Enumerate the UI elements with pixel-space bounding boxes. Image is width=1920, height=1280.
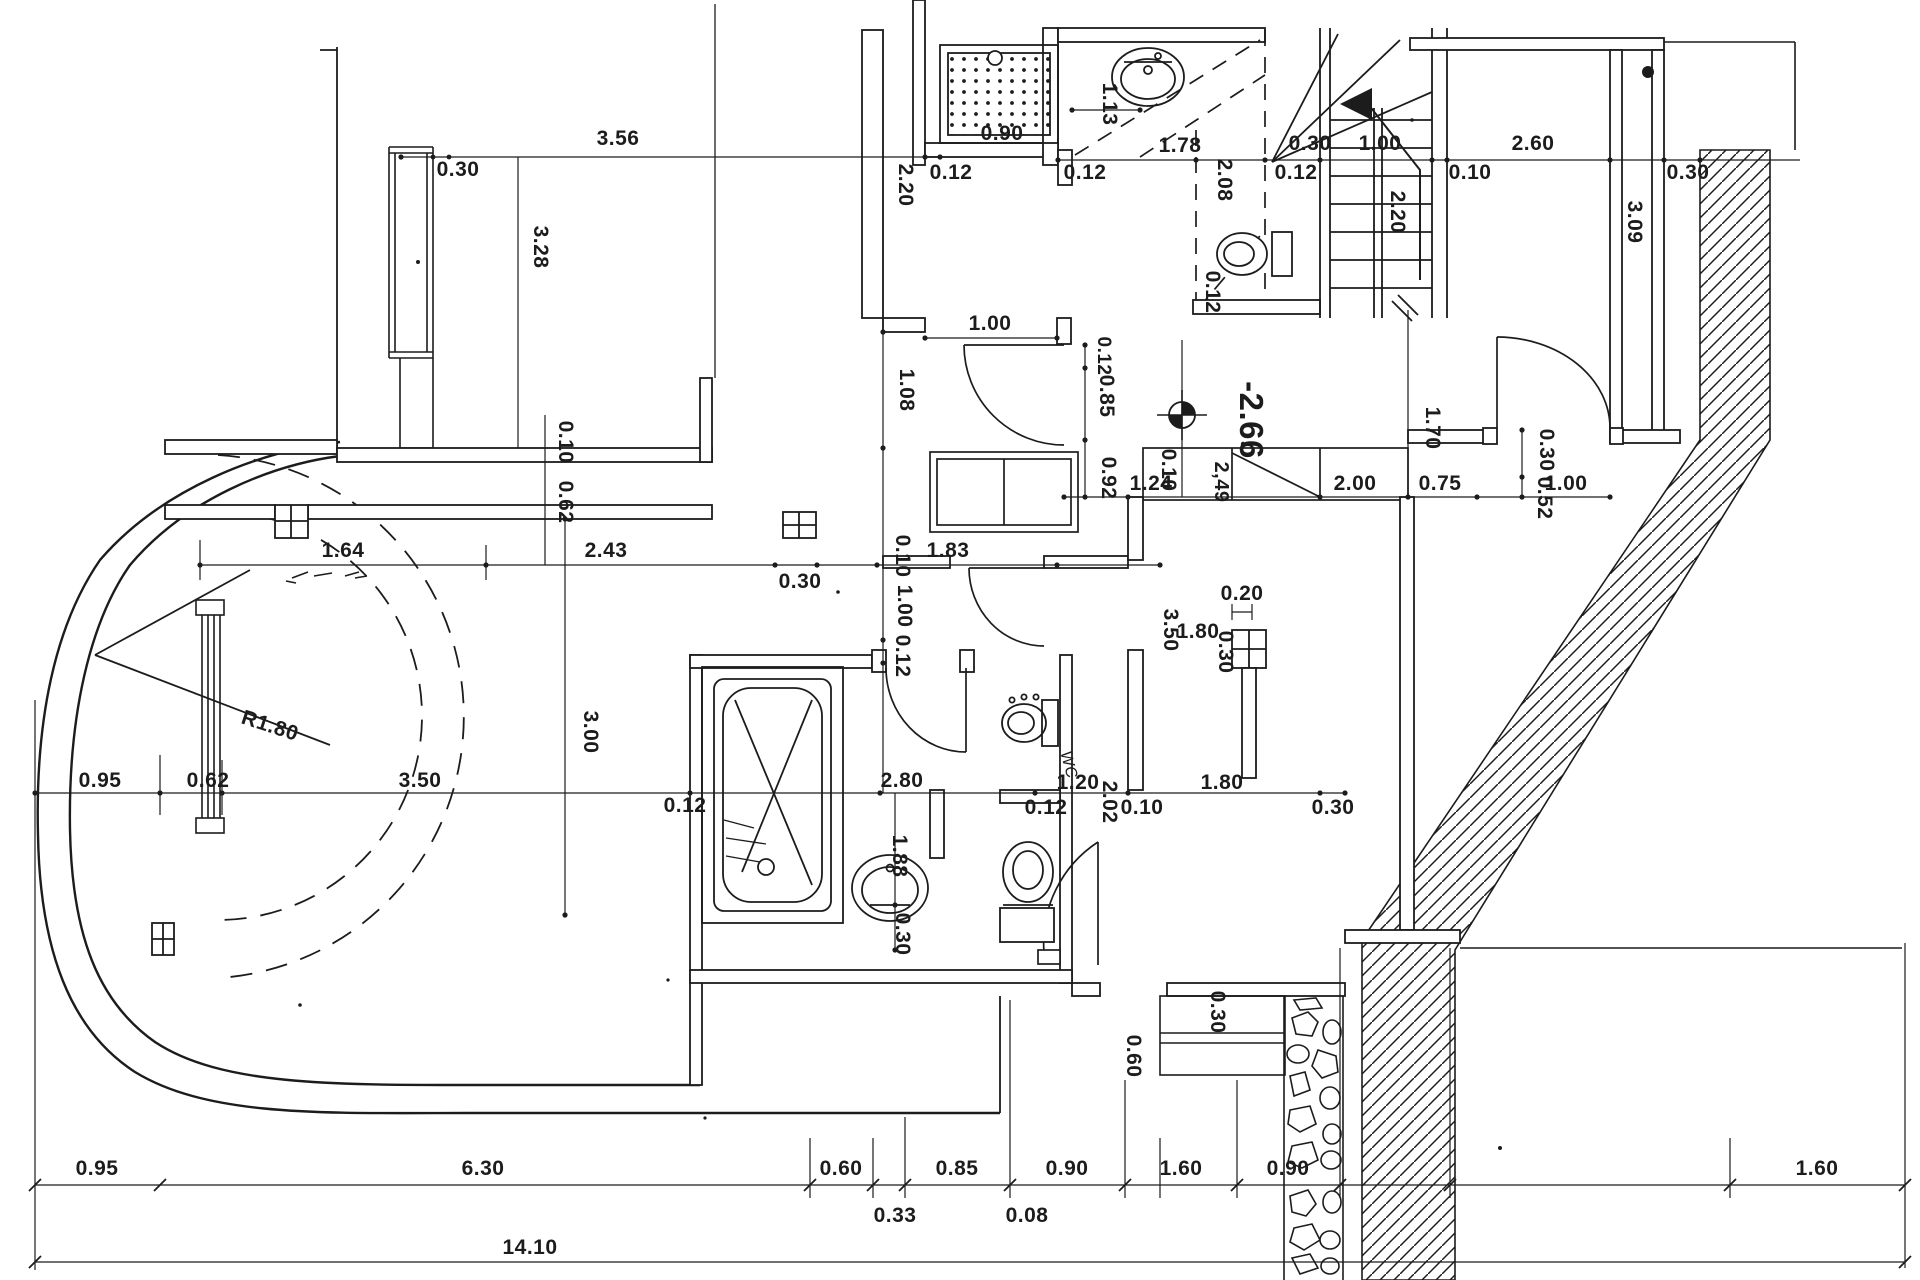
sketch-marks (286, 572, 367, 583)
dim-label: 0.30 (891, 913, 914, 956)
dim-label: 0.12 (1201, 271, 1224, 314)
dim-label: 0.90 (981, 122, 1024, 145)
dim-label: 0.85 (936, 1157, 979, 1180)
door-arc-kitchen-hall (969, 568, 1044, 646)
dim-label: 0.30 (1214, 631, 1237, 674)
dim-label: 0.12 (664, 794, 707, 817)
dim-label: 0.95 (79, 769, 122, 792)
sofa (930, 452, 1078, 532)
dim-label: 1.88 (888, 835, 911, 878)
dim-label: 1.83 (927, 539, 970, 562)
dim-label: 3.28 (529, 226, 552, 269)
dim-label: 0.95 (76, 1157, 119, 1180)
stairs-direction-arrow-icon (1340, 88, 1420, 280)
floor-plan-page: 3.56 0.30 3.28 2.20 0.12 0.90 1.13 0.12 … (0, 0, 1920, 1280)
dim-label: 0.10 (1449, 161, 1492, 184)
top-left-facade (320, 47, 337, 455)
exterior-steps (1160, 948, 1902, 1075)
dim-label: 1.60 (1160, 1157, 1203, 1180)
dim-label: 1.00 (893, 585, 916, 628)
dim-label: 2.20 (894, 164, 917, 207)
column-1 (275, 505, 308, 538)
dim-label: 0.12 (1275, 161, 1318, 184)
bidet-icon (1002, 694, 1058, 746)
dim-label: 2.02 (1098, 781, 1121, 824)
level-elevation-label: -2.66 (1233, 381, 1270, 459)
door-arc-upper-right (1497, 337, 1610, 428)
dim-label: 0.08 (1006, 1204, 1049, 1227)
window-left (389, 147, 433, 448)
dim-label: 0.90 (1267, 1157, 1310, 1180)
column-3 (152, 923, 174, 955)
dim-label: 1.80 (1177, 620, 1220, 643)
dim-label: 0.10 (1121, 796, 1164, 819)
dim-label: 3.50 (399, 769, 442, 792)
dim-label: 0.30 (1312, 796, 1355, 819)
dim-label: 0.60 (1122, 1035, 1145, 1078)
bottom-row-ticks (29, 1179, 1911, 1268)
dim-label: 0.30 (1206, 991, 1229, 1034)
dim-label: 0.60 (820, 1157, 863, 1180)
floor-plan-svg: 3.56 0.30 3.28 2.20 0.12 0.90 1.13 0.12 … (0, 0, 1920, 1280)
walls-top-left-room (165, 30, 1071, 462)
dim-label: 2.43 (585, 539, 628, 562)
door-arc-hall (964, 345, 1064, 445)
dim-label: 0.30 (437, 158, 480, 181)
dim-label: 1.64 (322, 539, 365, 562)
stone-rubble-wall (1284, 996, 1343, 1280)
door-hinge-dot (1642, 66, 1654, 78)
column-4 (783, 512, 816, 538)
door-arc-bathroom (886, 668, 966, 752)
dim-label: 1.00 (969, 312, 1012, 335)
dim-label: 0.30 (1667, 161, 1710, 184)
level-secondary-label: 2,49 (1210, 462, 1232, 503)
dim-label: 0.20 (1221, 582, 1264, 605)
dim-label: 0.90 (1046, 1157, 1089, 1180)
dim-label: 0.10 (1157, 449, 1180, 492)
dim-label: 1.70 (1421, 407, 1444, 450)
dim-label: 0.62 (187, 769, 230, 792)
dim-label: 0.75 (1419, 472, 1462, 495)
dim-label: 6.30 (462, 1157, 505, 1180)
dim-label: 2.60 (1512, 132, 1555, 155)
walls-kitchen (1060, 497, 1460, 996)
dim-label: 0.12 (891, 635, 914, 678)
dim-label: 3.00 (579, 711, 602, 754)
sink-icon (1112, 48, 1184, 106)
dim-label: 0.12 (1093, 337, 1114, 376)
walls-middle-row (165, 505, 1128, 568)
dim-label: 0.12 (930, 161, 973, 184)
dim-label: 3.09 (1623, 201, 1646, 244)
dim-label: 0.62 (554, 481, 577, 524)
dim-label: 1.00 (1359, 132, 1402, 155)
curved-bay-wall (38, 442, 1000, 1113)
dim-label: 0.92 (1097, 457, 1120, 500)
dim-label: 0.10 (891, 535, 914, 578)
radius-label: R1.80 (239, 706, 302, 746)
dim-label: 0.12 (1064, 161, 1107, 184)
dim-label: 1.80 (1201, 771, 1244, 794)
dim-label: 0.85 (1095, 375, 1118, 418)
dim-label: 0.30 (1289, 132, 1332, 155)
bay-radius-line (95, 570, 330, 745)
bay-window (196, 600, 224, 833)
dim-label: 0.33 (874, 1204, 917, 1227)
toilet-2-icon (1000, 842, 1054, 942)
dim-label: 1.60 (1796, 1157, 1839, 1180)
dim-label: 3.56 (597, 127, 640, 150)
dim-label: 2.80 (881, 769, 924, 792)
bathtub-icon (702, 667, 843, 923)
total-width-label: 14.10 (502, 1236, 557, 1259)
dim-label: 0.10 (554, 421, 577, 464)
dim-label: 0.30 (1535, 429, 1558, 472)
hatched-retaining-wall (1362, 150, 1770, 1280)
dim-label: 1.08 (895, 369, 918, 412)
dim-label: 2.00 (1334, 472, 1377, 495)
dim-label: 1.00 (1545, 472, 1588, 495)
dim-label: 1.78 (1159, 134, 1202, 157)
toilet-1-icon (1217, 232, 1292, 276)
dim-label: 2.20 (1386, 191, 1409, 234)
top-right-facade-line (1664, 42, 1795, 150)
dim-label: 2.08 (1213, 159, 1236, 202)
dim-label: 1.13 (1098, 83, 1121, 126)
dim-label: 0.30 (779, 570, 822, 593)
dim-label: 0.12 (1025, 796, 1068, 819)
